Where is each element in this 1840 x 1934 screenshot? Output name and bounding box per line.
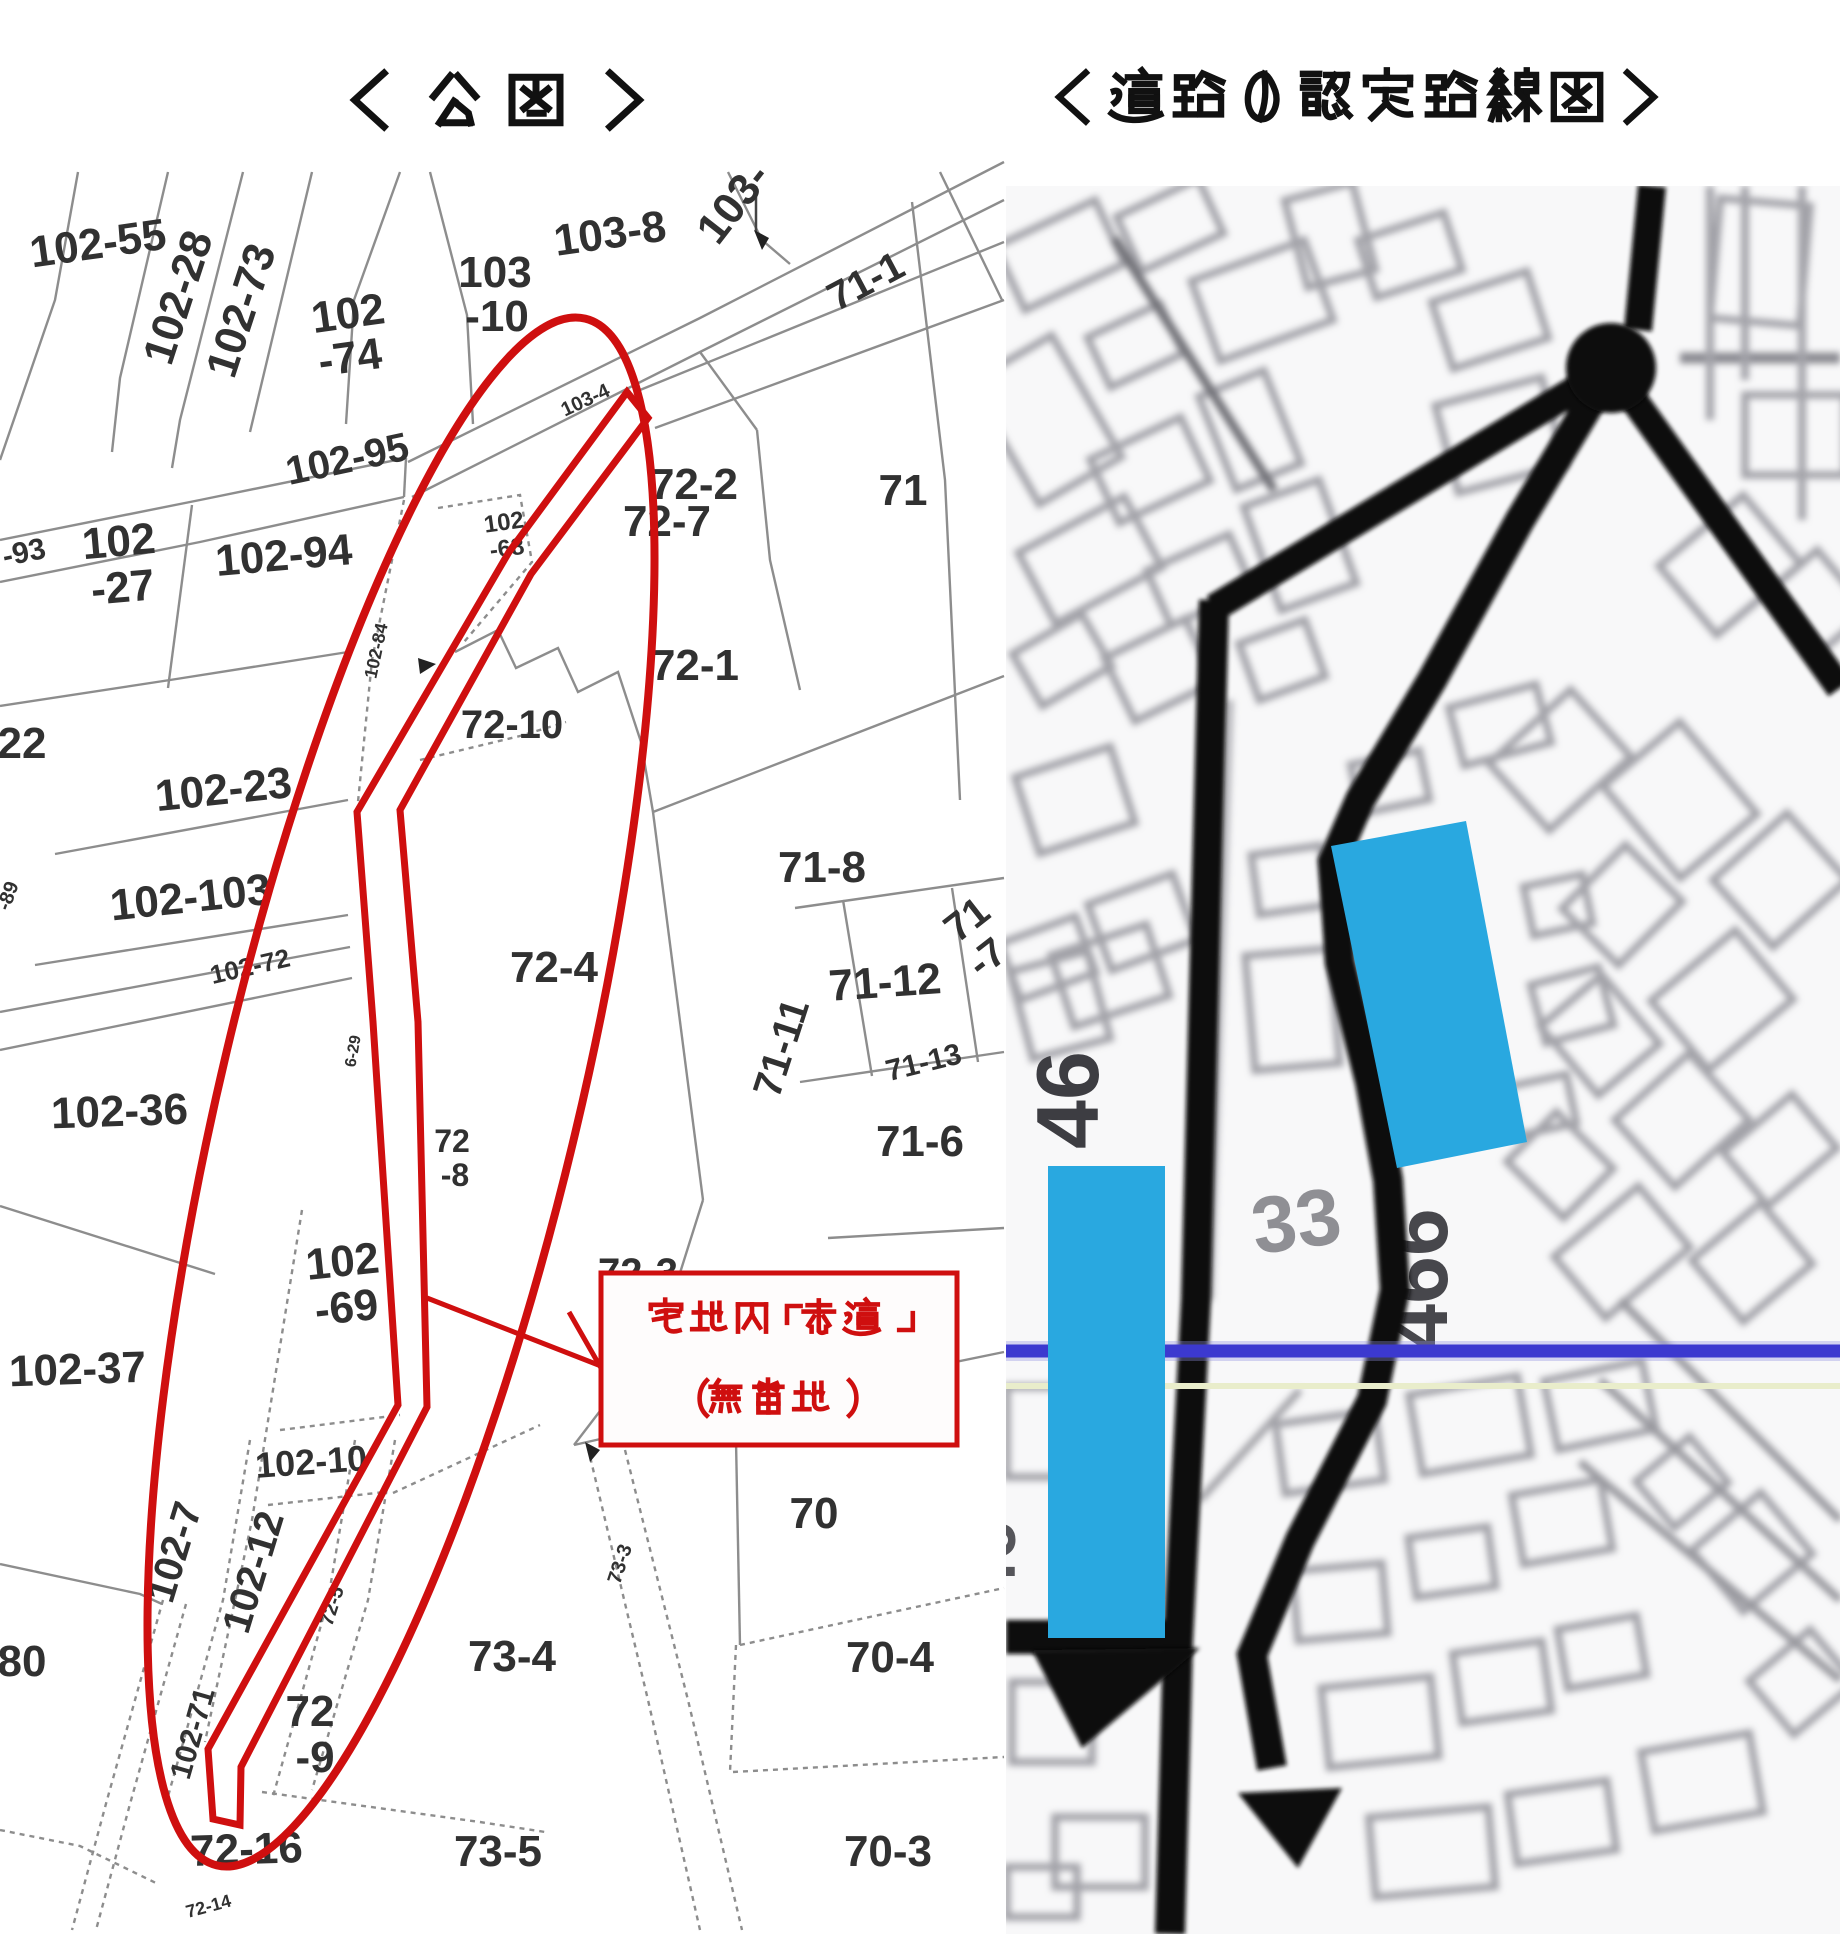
svg-text:72-10: 72-10	[461, 703, 563, 747]
svg-text:103: 103	[458, 248, 531, 297]
svg-text:70-3: 70-3	[844, 1827, 932, 1876]
svg-text:72-1: 72-1	[651, 641, 739, 690]
svg-text:80: 80	[0, 1637, 46, 1686]
svg-text:71-6: 71-6	[876, 1117, 964, 1166]
svg-text:102-10: 102-10	[254, 1437, 369, 1486]
svg-text:-69: -69	[312, 1280, 380, 1335]
svg-text:71-8: 71-8	[778, 843, 866, 892]
svg-text:73-4: 73-4	[468, 1632, 557, 1681]
svg-text:46: 46	[1018, 1051, 1117, 1149]
svg-text:72: 72	[286, 1687, 335, 1736]
svg-text:71: 71	[879, 466, 928, 515]
svg-text:70: 70	[790, 1489, 839, 1538]
svg-text:-74: -74	[315, 329, 385, 386]
svg-text:-10: -10	[465, 292, 529, 341]
svg-text:72-7: 72-7	[623, 497, 711, 546]
svg-text:-9: -9	[295, 1733, 334, 1782]
svg-text:-27: -27	[89, 560, 157, 614]
svg-text:70-4: 70-4	[846, 1633, 935, 1682]
svg-text:102-36: 102-36	[50, 1085, 189, 1139]
svg-text:22: 22	[0, 719, 46, 768]
svg-text:71-12: 71-12	[827, 954, 943, 1011]
svg-text:102-37: 102-37	[8, 1343, 147, 1397]
svg-text:33: 33	[1246, 1171, 1347, 1272]
svg-text:-8: -8	[441, 1157, 469, 1193]
svg-text:73-5: 73-5	[454, 1827, 542, 1876]
svg-text:72: 72	[434, 1123, 470, 1159]
svg-text:72-4: 72-4	[510, 943, 599, 992]
